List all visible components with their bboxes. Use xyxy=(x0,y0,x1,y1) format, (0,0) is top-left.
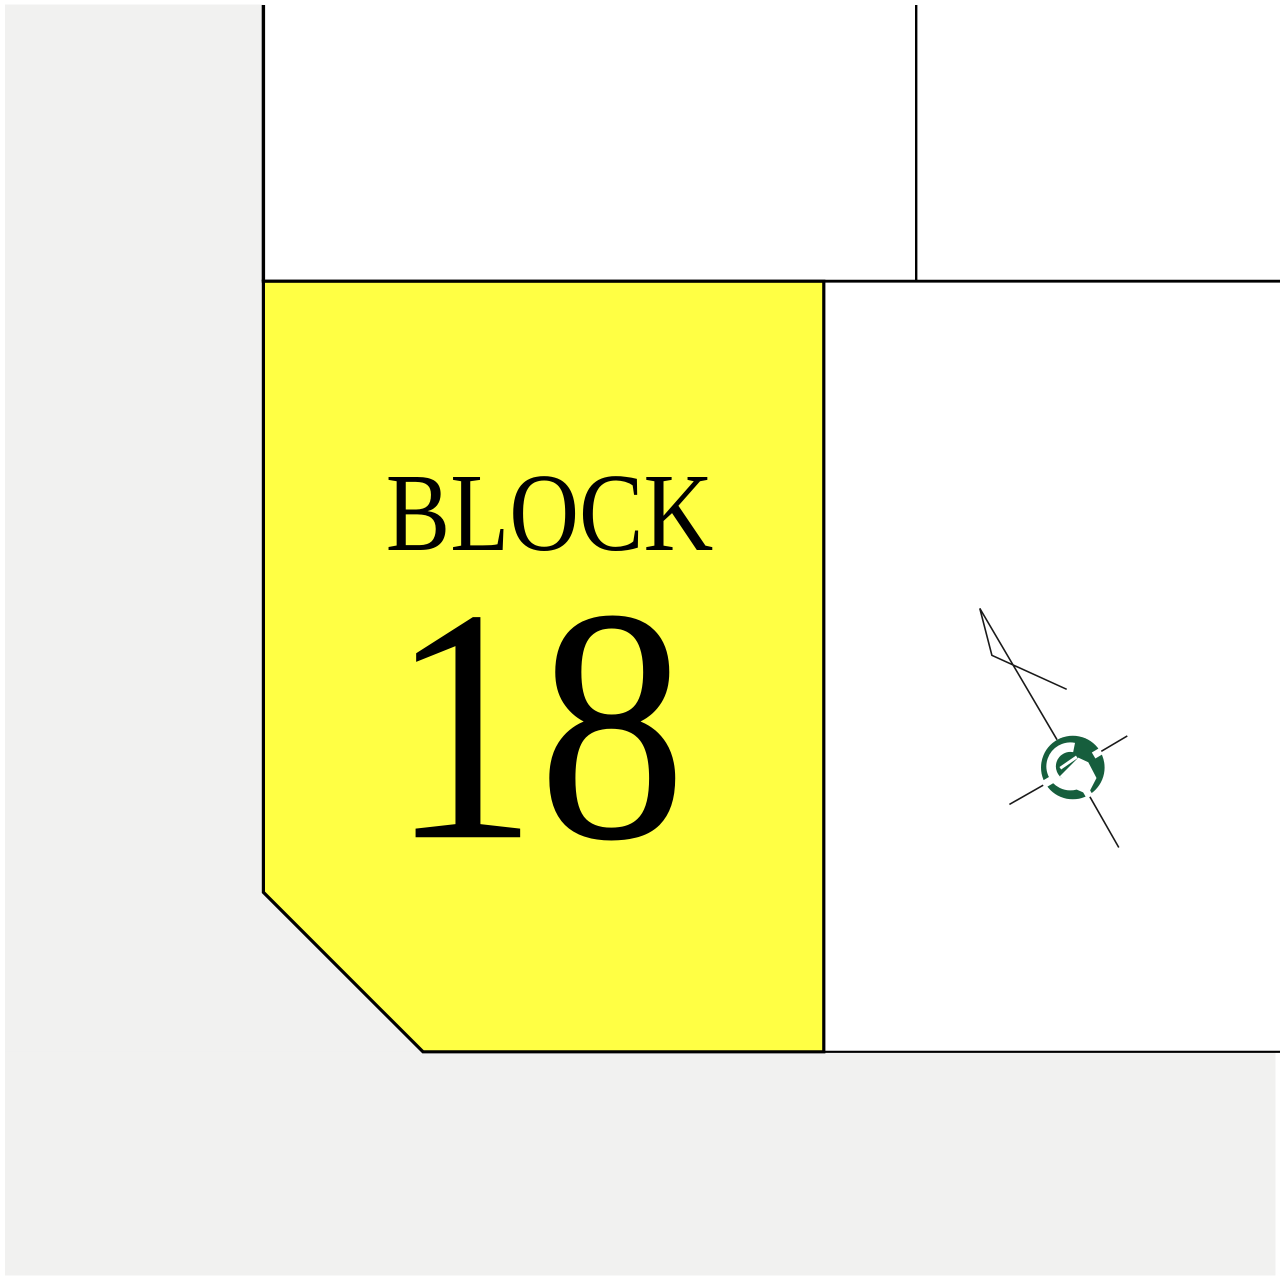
svg-text:18: 18 xyxy=(389,542,686,911)
